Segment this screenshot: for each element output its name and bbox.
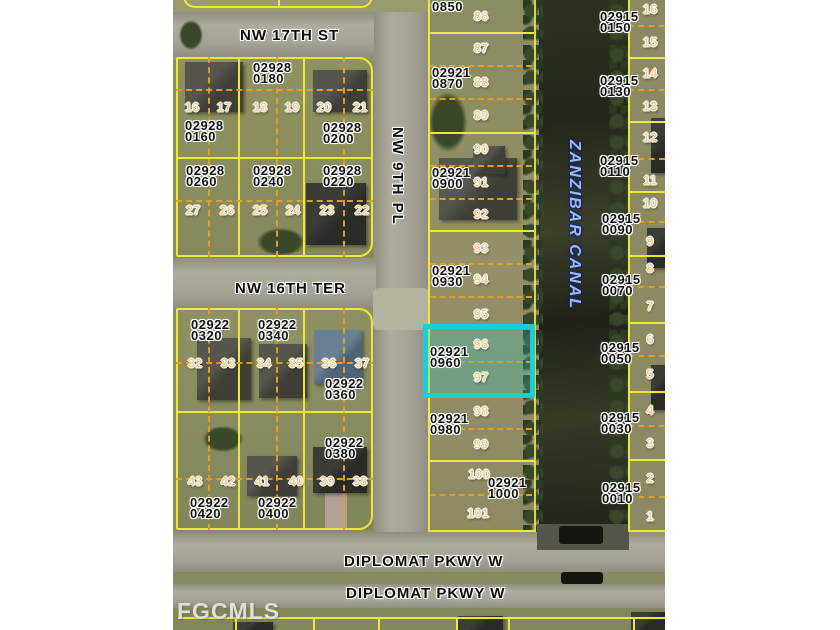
tree-blob [179,20,203,50]
aerial-plat-map[interactable]: NW 17TH STNW 16TH TERNW 9TH PLDIPLOMAT P… [173,0,665,630]
fgcmls-watermark: FGCMLS [177,598,280,625]
lot-divider [430,198,532,200]
road-nw-16th-ter [173,258,376,308]
house [651,365,665,410]
parcel-boundary [428,530,536,532]
parcel-boundary [278,0,280,6]
lot-divider [430,165,532,167]
lot-divider [276,308,278,530]
parcel-boundary [628,459,665,461]
tree-blob [429,92,467,152]
house [651,118,665,173]
parcel-boundary [534,0,536,530]
parcel-boundary [628,530,665,532]
highlighted-parcel [423,324,535,398]
lot-divider [208,308,210,530]
lot-divider [628,25,665,27]
canal-treeline-east [609,0,629,532]
lot-divider [430,263,532,265]
lot-divider [628,89,665,91]
parcel-boundary [628,322,665,324]
canal-culvert [561,572,603,584]
parcel-boundary [628,391,665,393]
lot-divider [430,494,532,496]
lot-divider [176,89,373,91]
lot-divider [176,478,373,480]
lot-divider [176,362,373,364]
parcel-boundary [628,0,630,530]
lot-divider [343,57,345,257]
lot-divider [628,496,665,498]
canal-name-label: ZANZIBAR CANAL [565,140,583,330]
driveway-corner [373,288,430,330]
parcel-boundary [303,308,305,530]
parcel-boundary [428,0,430,532]
parcel-boundary [313,619,315,630]
house [631,612,665,630]
lot-divider [430,428,532,430]
house [647,228,665,268]
mls-listing-photo: NW 17TH STNW 16TH TERNW 9TH PLDIPLOMAT P… [0,0,840,630]
lot-divider [276,57,278,257]
parcel-boundary [428,132,534,134]
parcel-boundary [428,460,534,462]
lot-divider [628,158,665,160]
parcel-boundary [378,619,380,630]
parcel-boundary [628,121,665,123]
lot-divider [208,57,210,257]
parcel-boundary [428,32,534,34]
parcel-boundary [628,57,665,59]
parcel-boundary [628,255,665,257]
lot-divider [430,98,532,100]
parcel-boundary [508,619,510,630]
lot-divider [628,355,665,357]
house [473,146,505,174]
lot-divider [628,425,665,427]
parcel-boundary [456,619,458,630]
parcel-boundary [628,191,665,193]
parcel-boundary [428,230,534,232]
lot-divider [176,200,373,202]
parcel-boundary [238,308,240,530]
lot-divider [430,65,532,67]
lot-divider [628,286,665,288]
canal-culvert [559,526,603,544]
lot-divider [343,308,345,530]
road-nw-9th-pl [374,12,428,538]
lot-divider [628,221,665,223]
parcel-boundary [633,619,635,630]
canal-treeline-west [523,0,543,532]
lot-divider [430,296,532,298]
